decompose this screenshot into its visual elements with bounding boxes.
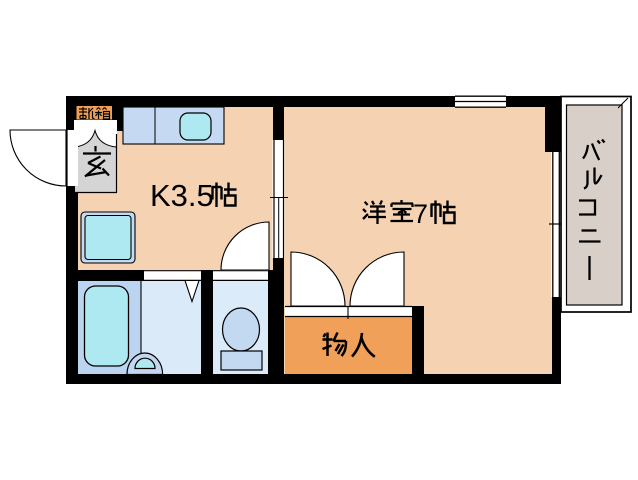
svg-text:K3.5: K3.5	[150, 178, 214, 213]
svg-text:7: 7	[413, 199, 428, 229]
